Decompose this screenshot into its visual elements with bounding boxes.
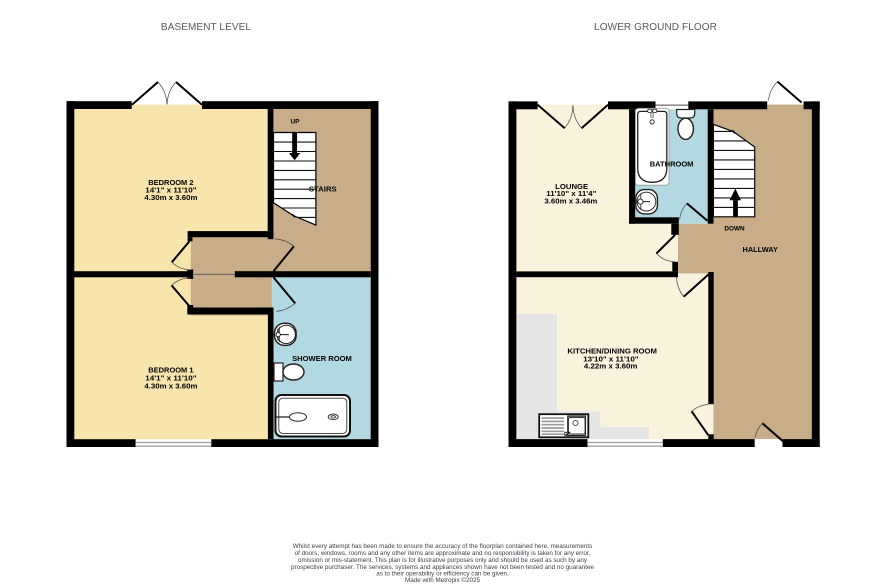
svg-text:11'10" x 11'4": 11'10" x 11'4"	[546, 191, 596, 198]
svg-text:BEDROOM 2: BEDROOM 2	[148, 180, 193, 187]
svg-text:DOWN: DOWN	[724, 226, 745, 233]
svg-text:13'10" x 11'10": 13'10" x 11'10"	[583, 356, 638, 363]
svg-text:omission or mis-statement. Thi: omission or mis-statement. This plan is …	[298, 557, 588, 564]
svg-text:Whilst every attempt has been: Whilst every attempt has been made to en…	[293, 543, 593, 550]
svg-text:BATHROOM: BATHROOM	[650, 162, 694, 169]
svg-text:KITCHEN/DINING ROOM: KITCHEN/DINING ROOM	[567, 349, 657, 356]
svg-text:BASEMENT LEVEL: BASEMENT LEVEL	[161, 22, 251, 33]
svg-text:of doors, windows, rooms and a: of doors, windows, rooms and any other i…	[295, 550, 591, 557]
svg-text:LOUNGE: LOUNGE	[555, 184, 588, 191]
svg-text:4.30m x 3.60m: 4.30m x 3.60m	[144, 195, 197, 202]
svg-text:Made with Metropix ©2025: Made with Metropix ©2025	[405, 576, 480, 584]
svg-text:STAIRS: STAIRS	[309, 187, 337, 194]
svg-text:14'1" x 11'10": 14'1" x 11'10"	[145, 188, 196, 195]
svg-text:HALLWAY: HALLWAY	[743, 247, 779, 254]
svg-text:3.60m x 3.46m: 3.60m x 3.46m	[544, 199, 597, 206]
svg-text:4.22m x 3.60m: 4.22m x 3.60m	[584, 364, 638, 371]
svg-text:LOWER GROUND FLOOR: LOWER GROUND FLOOR	[594, 22, 717, 33]
svg-text:UP: UP	[291, 118, 301, 125]
svg-text:14'1" x 11'10": 14'1" x 11'10"	[145, 376, 196, 383]
svg-text:SHOWER ROOM: SHOWER ROOM	[292, 356, 352, 363]
svg-text:BEDROOM 1: BEDROOM 1	[148, 368, 193, 375]
svg-text:4.30m x 3.60m: 4.30m x 3.60m	[144, 384, 197, 391]
